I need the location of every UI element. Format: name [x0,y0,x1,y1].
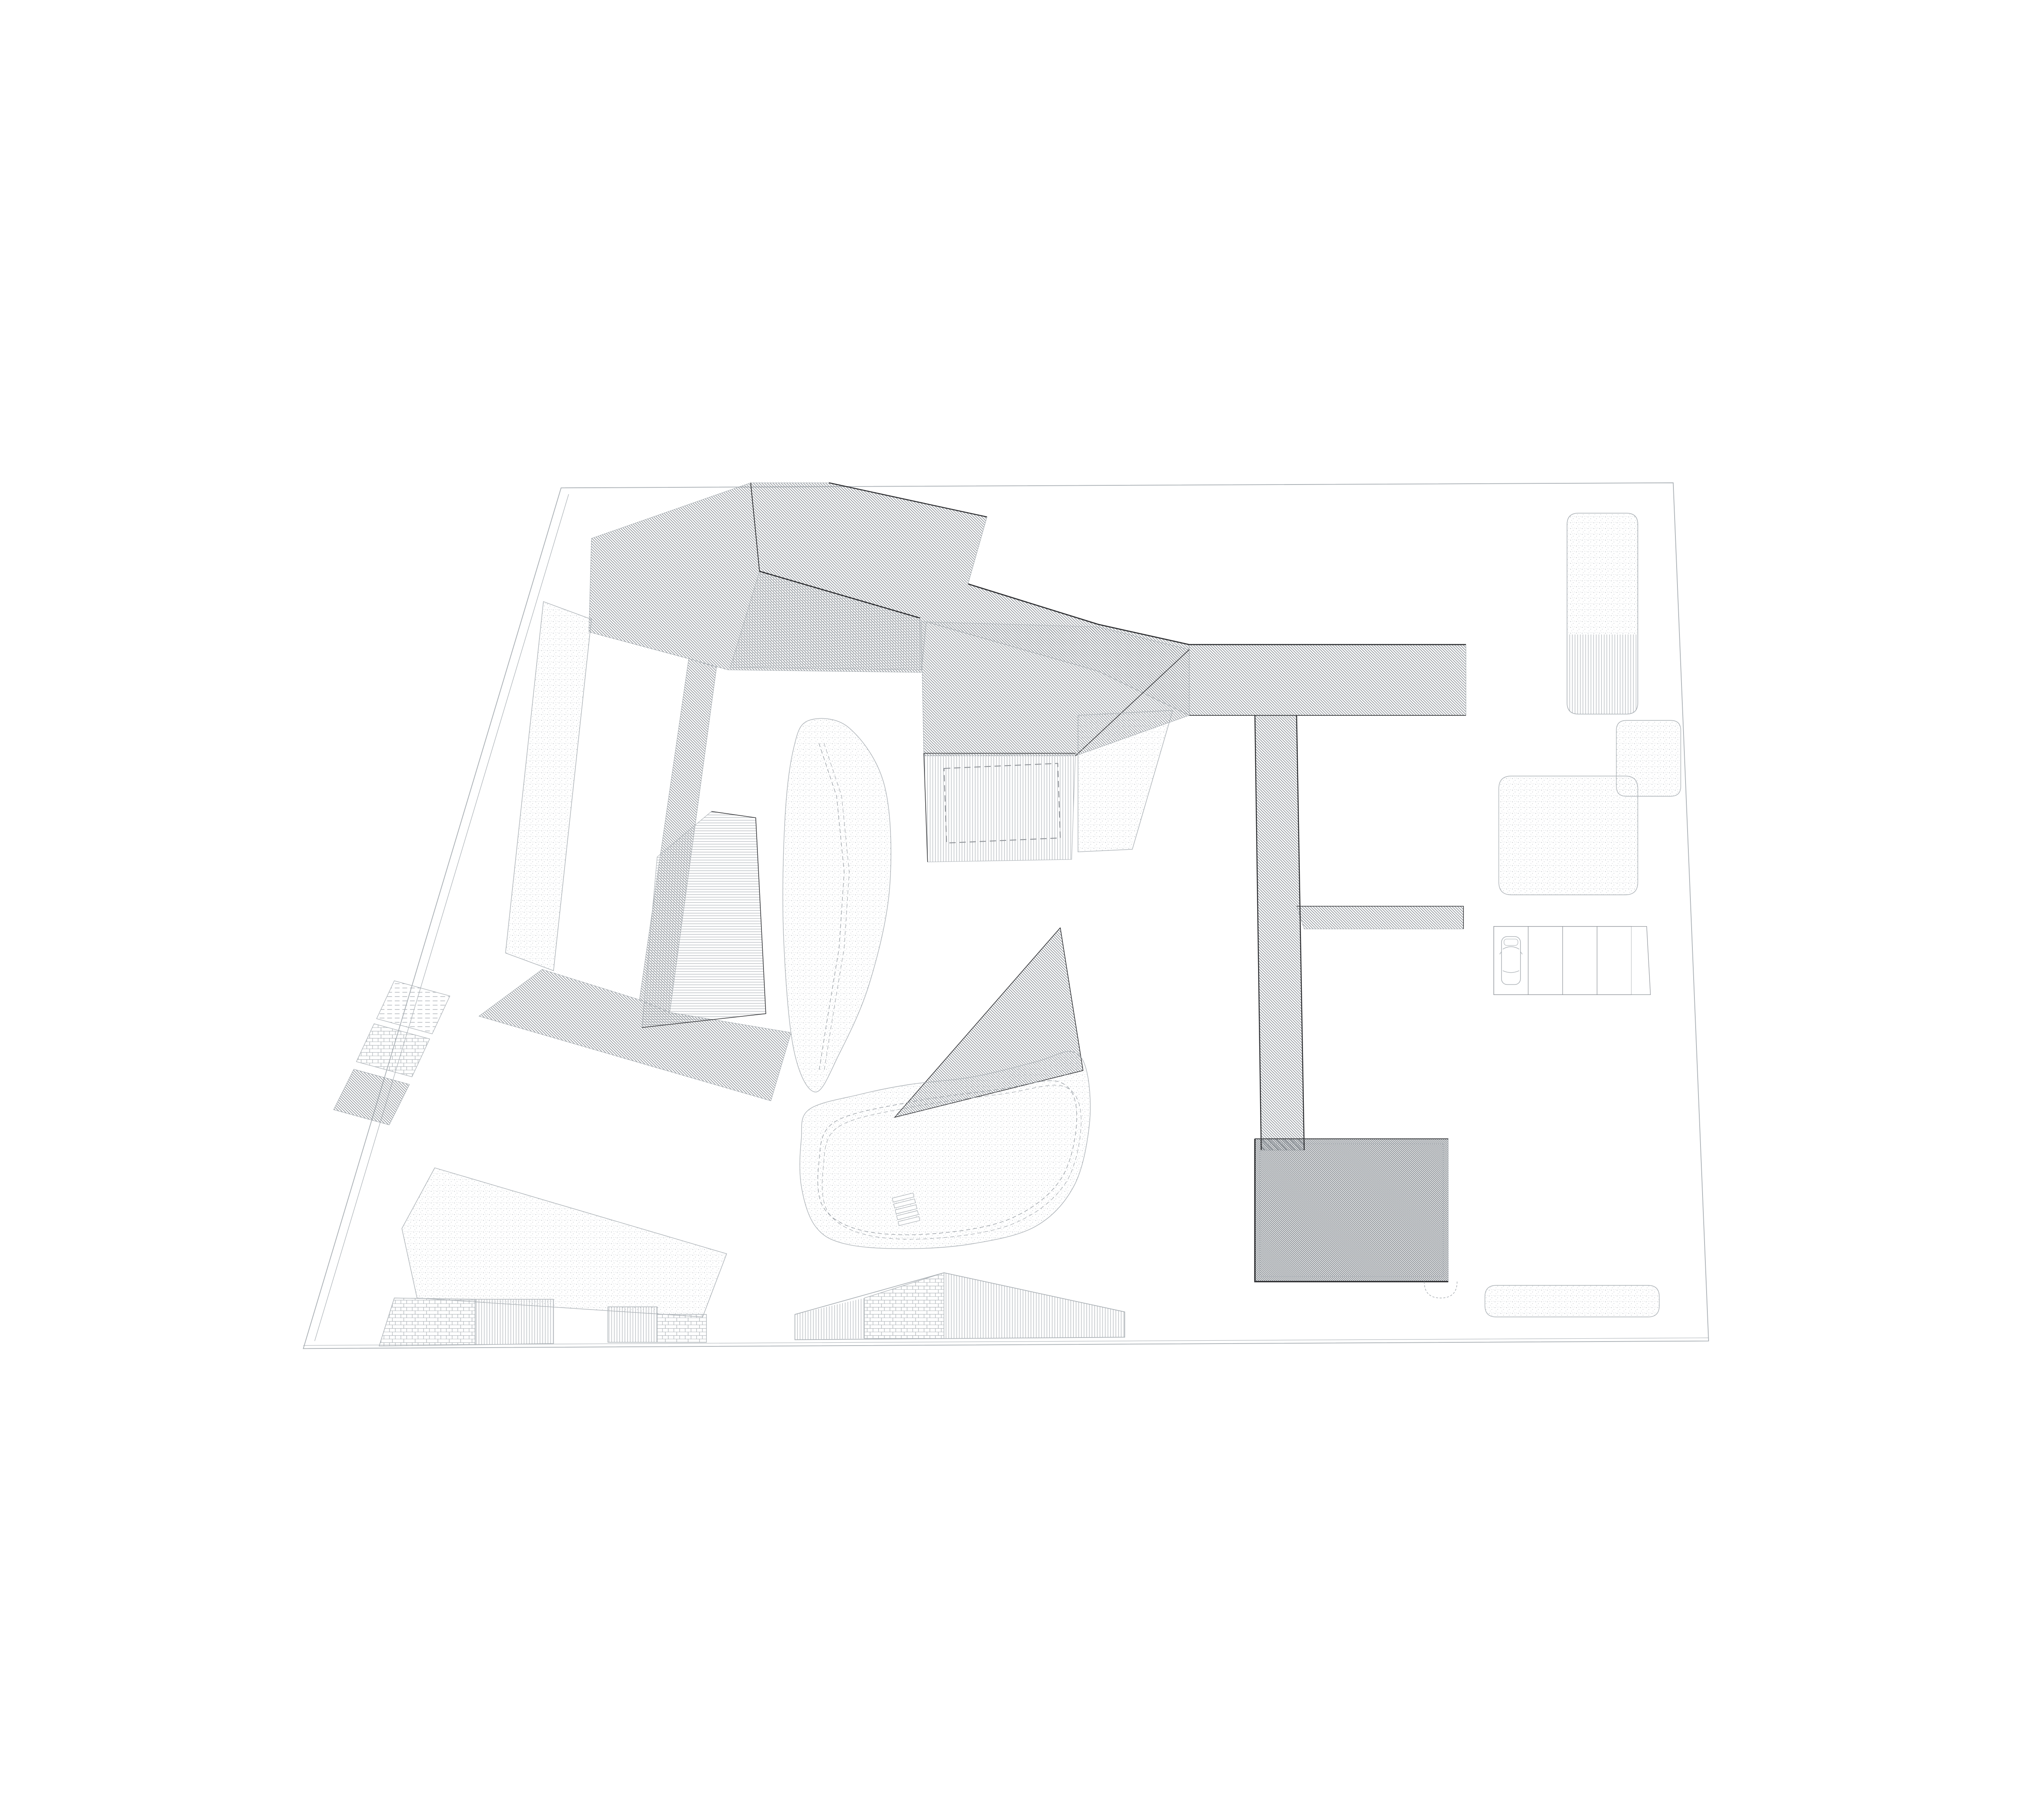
playground [924,753,1075,862]
site-plan-drawing [0,0,2022,1820]
parked-car [1500,937,1522,985]
road-under-north-building [1189,645,1466,715]
bed-center-north [783,718,891,1092]
terrace-courtyard [642,811,766,1027]
parking-area [1494,927,1651,995]
band-between-east-buildings [1297,906,1464,929]
retaining-wall-0 [379,1298,476,1346]
strip-2 [334,1069,410,1125]
strip-1 [356,1024,429,1077]
gate-swing-right [1441,1282,1457,1298]
bed-northeast [1567,513,1638,714]
bed-southwest-garden [402,1168,727,1317]
courtyard-southeast [1255,1139,1448,1282]
gate-swing-left [1424,1282,1441,1298]
bed-center-south-garden [800,1051,1090,1249]
bed-east-mid [1499,776,1638,895]
bed-playground-east [1078,710,1173,852]
strip-0 [376,981,450,1034]
south-roof [795,1273,1125,1340]
parking-row-0 [1494,927,1651,995]
bed-east-small [1616,720,1681,796]
site-plan-stage [0,0,2022,1820]
bed-southeast [1485,1285,1659,1317]
retaining-wall-3 [657,1314,706,1342]
bed-west-strip [505,602,592,971]
road-vertical [1255,715,1304,1150]
